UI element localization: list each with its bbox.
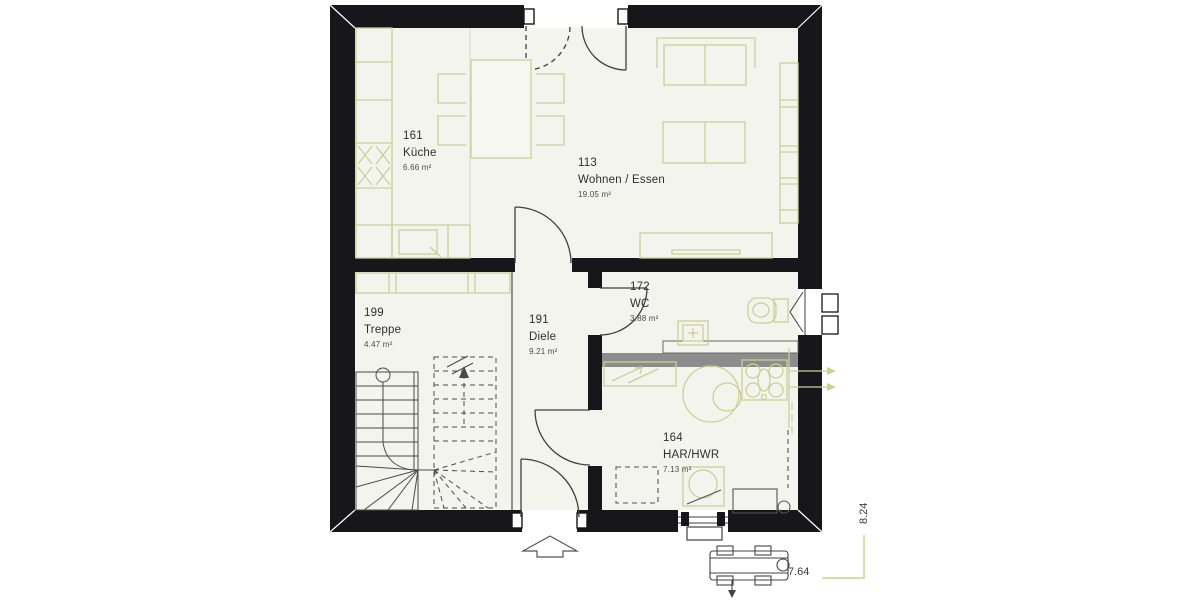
dining-table	[471, 60, 531, 158]
room-area: 4.47 m²	[364, 339, 401, 351]
room-label-wc: 172 WC 3.88 m²	[630, 279, 659, 325]
room-name: Treppe	[364, 322, 401, 339]
dimension-lines	[822, 535, 864, 578]
room-name: WC	[630, 296, 659, 313]
room-number: 164	[663, 430, 719, 447]
dimension-depth-label: 8.24	[858, 503, 870, 524]
room-number: 172	[630, 279, 659, 296]
room-label-diele: 191 Diele 9.21 m²	[529, 312, 558, 358]
room-number: 161	[403, 128, 437, 145]
room-area: 6.66 m²	[403, 162, 437, 174]
room-label-kueche: 161 Küche 6.66 m²	[403, 128, 437, 174]
room-name: Diele	[529, 329, 558, 346]
floor-plan-drawing	[0, 0, 1200, 600]
room-number: 191	[529, 312, 558, 329]
room-label-wohnen-essen: 113 Wohnen / Essen 19.05 m²	[578, 155, 665, 201]
room-name: Küche	[403, 145, 437, 162]
room-name: Wohnen / Essen	[578, 172, 665, 189]
har-window	[678, 510, 728, 540]
room-number: 113	[578, 155, 665, 172]
washbasin-icon	[678, 321, 708, 345]
room-number: 199	[364, 305, 401, 322]
dimension-width-label: 7.64	[788, 566, 809, 578]
floor-plan-page: 161 Küche 6.66 m² 113 Wohnen / Essen 19.…	[0, 0, 1200, 600]
entrance-arrow-icon	[523, 536, 577, 557]
room-label-treppe: 199 Treppe 4.47 m²	[364, 305, 401, 351]
room-area: 9.21 m²	[529, 346, 558, 358]
room-area: 19.05 m²	[578, 189, 665, 201]
room-area: 7.13 m²	[663, 464, 719, 476]
room-name: HAR/HWR	[663, 447, 719, 464]
room-label-har-hwr: 164 HAR/HWR 7.13 m²	[663, 430, 719, 476]
car-top-view-icon	[710, 546, 789, 598]
room-area: 3.88 m²	[630, 313, 659, 325]
wc-installation-ledge	[663, 341, 798, 353]
